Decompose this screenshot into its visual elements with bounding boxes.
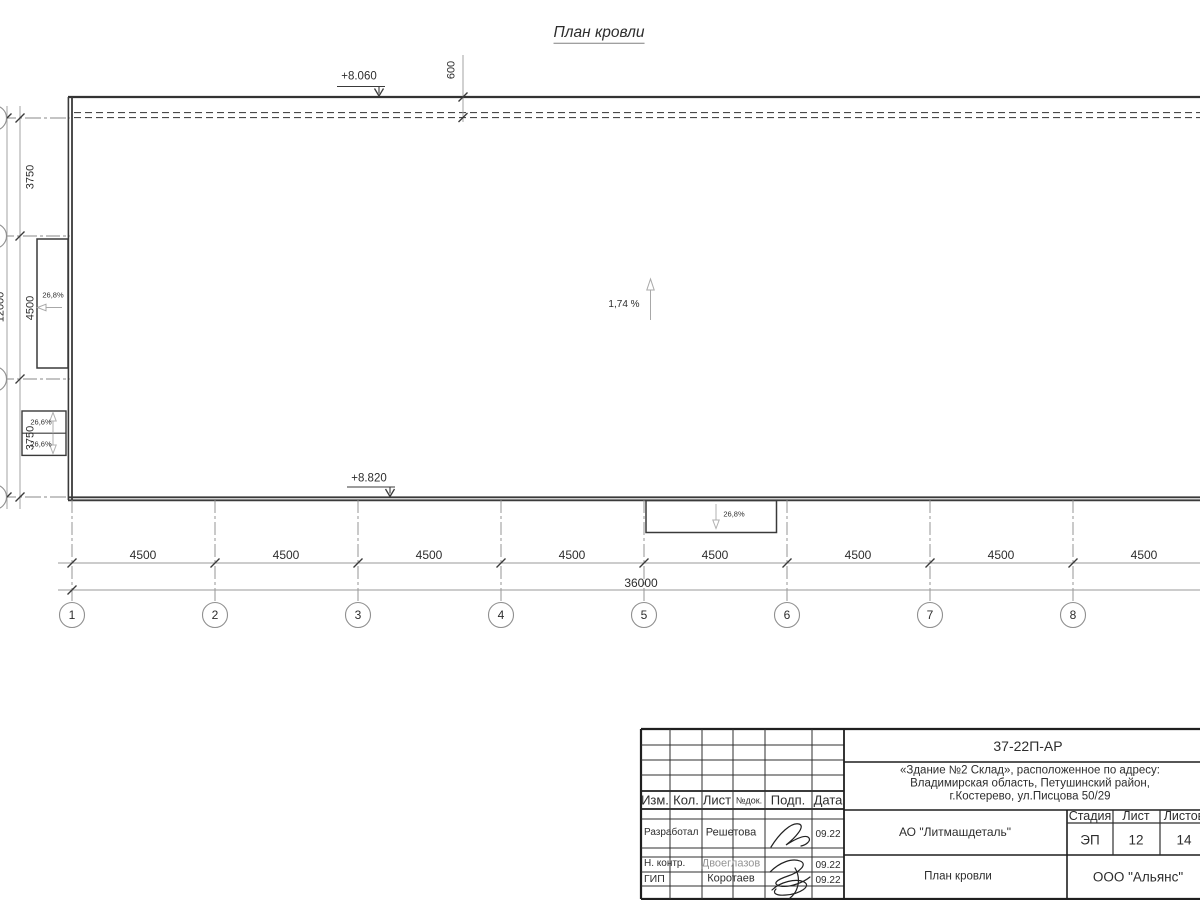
- elevation-bottom-label: +8.820: [351, 473, 387, 485]
- stage-value: ЭП: [1080, 833, 1099, 847]
- slope-canopy-label: 26,8%: [723, 510, 744, 518]
- dim-bottom-1: 4500: [130, 549, 157, 561]
- slope-arrow-left-icon: [38, 304, 47, 311]
- axis-bubble-partial: [0, 367, 7, 392]
- dim-bottom-total: 36000: [624, 577, 657, 589]
- bottom-canopy: [646, 501, 777, 533]
- dim-bottom-6: 4500: [845, 549, 872, 561]
- axis-label-6: 6: [784, 609, 791, 621]
- stage-label: Стадия: [1069, 810, 1112, 823]
- header-ndok: №док.: [736, 797, 762, 806]
- slope-main-label: 1,74 %: [608, 300, 639, 310]
- dim-bottom-2: 4500: [273, 549, 300, 561]
- sheets-value: 14: [1176, 833, 1191, 847]
- left-canopy-big: [37, 239, 68, 368]
- row-name-gip: Коротаев: [707, 874, 755, 885]
- axis-bubble-partial: [0, 224, 7, 249]
- dim-left-2: 4500: [26, 296, 37, 320]
- dim-bottom-5: 4500: [702, 549, 729, 561]
- axis-bubble-partial: [0, 106, 7, 131]
- signature-control-gip: [770, 860, 810, 898]
- dim-left-3: 3750: [26, 426, 37, 450]
- row-name-control: Двоеглазов: [702, 859, 760, 870]
- dim-bottom-3: 4500: [416, 549, 443, 561]
- slope-left-small-label-1: 26,6%: [30, 418, 51, 426]
- header-podp: Подп.: [771, 794, 806, 807]
- axis-bubbles: [60, 603, 1200, 628]
- row-role-developer: Разработал: [644, 828, 698, 838]
- dim-bottom-4: 4500: [559, 549, 586, 561]
- dim-bottom-7: 4500: [988, 549, 1015, 561]
- row-date-gip: 09.22: [815, 876, 840, 886]
- dim-bottom-8: 4500: [1131, 549, 1158, 561]
- sheet-label: Лист: [1122, 810, 1149, 823]
- roof-plan-sheet: План кровли +8.060 600 +8.820 1,74 % 26,…: [0, 0, 1200, 900]
- elevation-top-label: +8.060: [341, 71, 377, 83]
- axis-label-1: 1: [69, 609, 76, 621]
- sheets-label: Листов: [1164, 810, 1200, 823]
- elevation-mark-top: [337, 87, 385, 97]
- parapet-dashed-line: [74, 113, 1200, 118]
- row-role-control: Н. контр.: [644, 859, 685, 869]
- elevation-mark-bottom: [347, 487, 395, 497]
- doc-number: 37-22П-АР: [993, 739, 1062, 753]
- row-date-control: 09.22: [815, 861, 840, 871]
- sheet-value: 12: [1128, 833, 1143, 847]
- row-name-developer: Решетова: [706, 828, 756, 839]
- dim-left-1: 3750: [26, 165, 37, 189]
- parapet-dimension-line: [459, 55, 468, 122]
- axis-label-2: 2: [212, 609, 219, 621]
- slope-left-big-label: 26,8%: [42, 291, 63, 299]
- project-address-line3: г.Костерево, ул.Писцова 50/29: [950, 791, 1111, 803]
- parapet-dimension-label: 600: [447, 61, 458, 79]
- axis-label-4: 4: [498, 609, 505, 621]
- org-name: ООО "Альянс": [1093, 870, 1183, 884]
- slope-arrow-down-icon: [713, 520, 719, 529]
- signature-developer: [771, 824, 809, 847]
- project-address-line1: «Здание №2 Склад», расположенное по адре…: [900, 765, 1160, 777]
- dim-left-total: 12000: [0, 292, 7, 323]
- project-address-line2: Владимирская область, Петушинский район,: [910, 778, 1150, 790]
- slope-arrow-up-icon: [647, 279, 654, 290]
- main-slope-arrow: [647, 279, 654, 320]
- axis-label-8: 8: [1070, 609, 1077, 621]
- header-kol: Кол.: [673, 794, 699, 807]
- row-role-gip: ГИП: [644, 874, 665, 885]
- row-date-developer: 09.22: [815, 830, 840, 840]
- axis-label-7: 7: [927, 609, 934, 621]
- company-name: АО "Литмашдеталь": [899, 826, 1011, 838]
- drawing-title: План кровли: [554, 25, 645, 44]
- axis-label-5: 5: [641, 609, 648, 621]
- sheet-title: План кровли: [924, 871, 992, 883]
- axis-bubble-partial: [0, 485, 7, 510]
- header-data: Дата: [814, 794, 843, 807]
- axis-label-3: 3: [355, 609, 362, 621]
- header-izm: Изм.: [641, 794, 669, 807]
- header-list: Лист: [703, 794, 731, 807]
